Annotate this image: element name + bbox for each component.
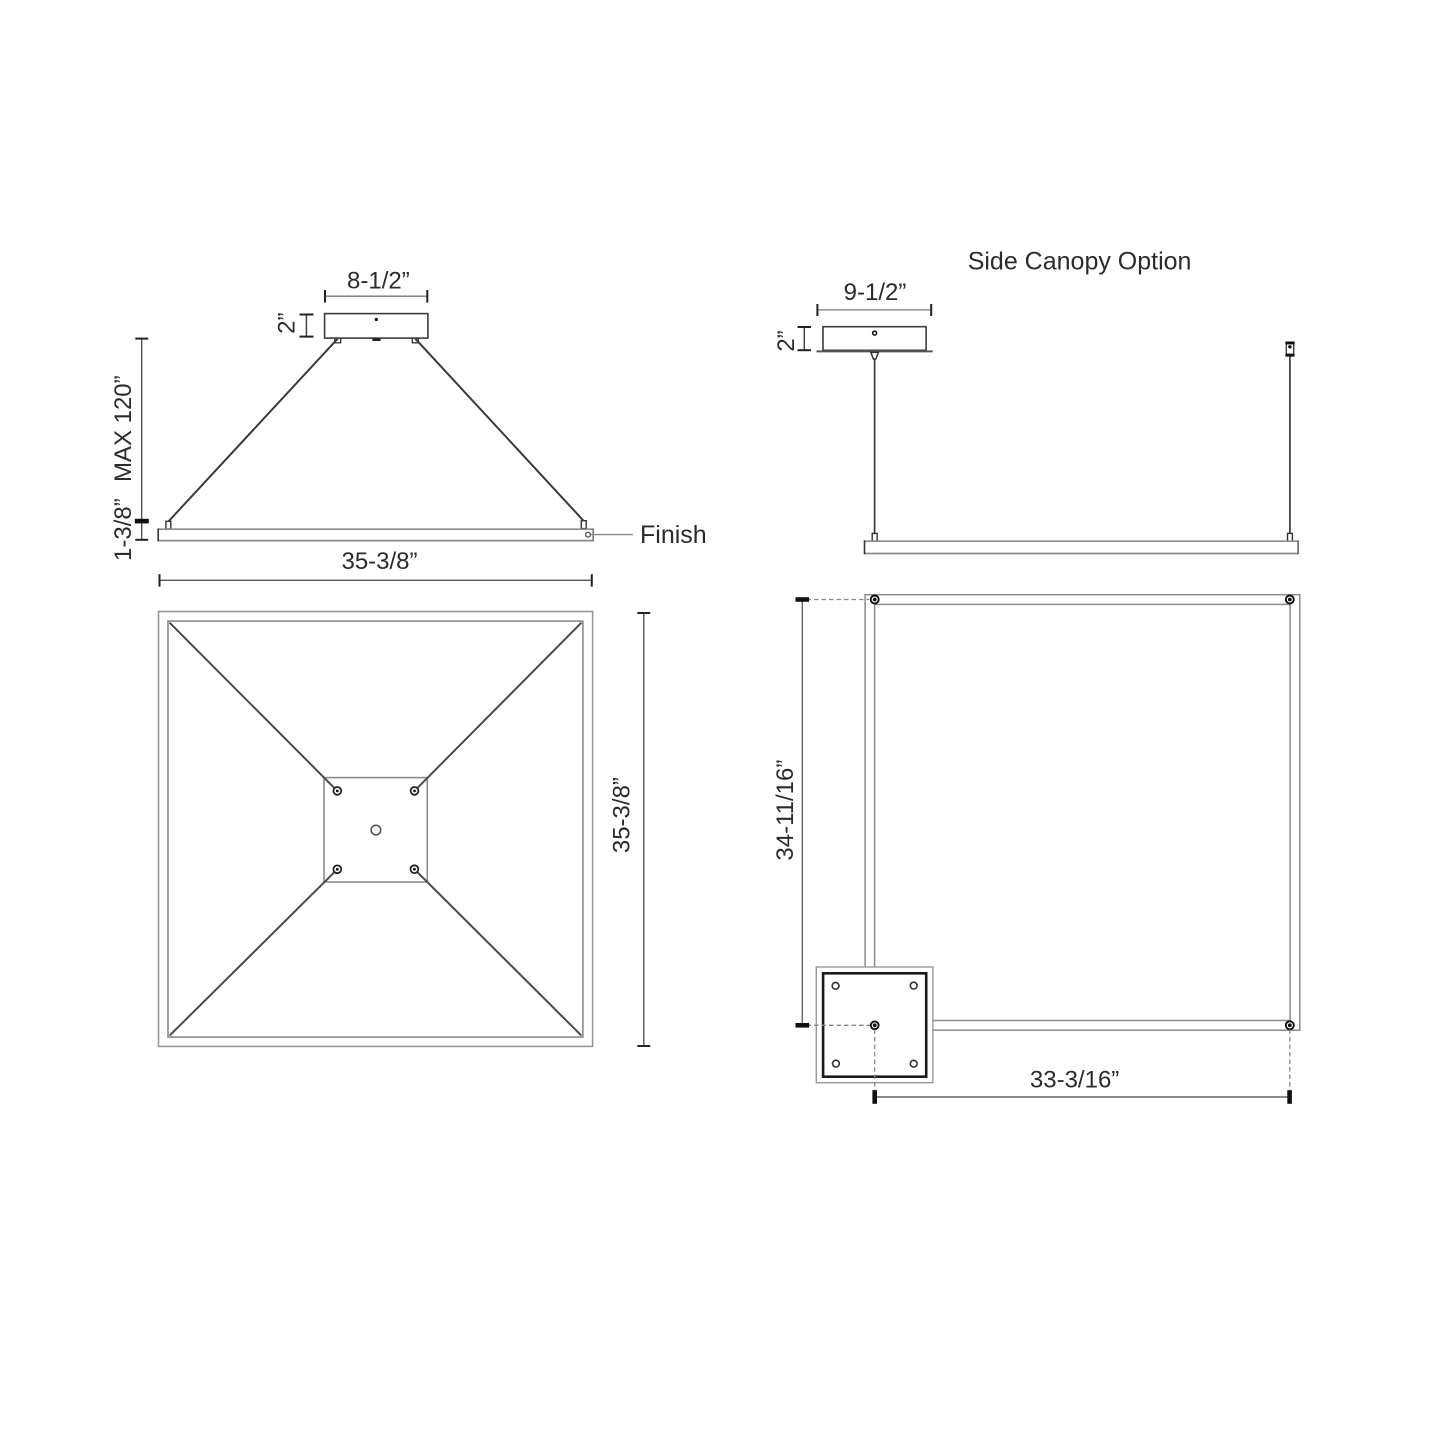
svg-text:8-1/2”: 8-1/2” xyxy=(347,268,410,295)
svg-text:34-11/16”: 34-11/16” xyxy=(772,760,799,861)
svg-text:Side Canopy Option: Side Canopy Option xyxy=(968,248,1192,276)
svg-text:35-3/8”: 35-3/8” xyxy=(341,548,417,575)
svg-text:Finish: Finish xyxy=(640,521,707,549)
svg-text:9-1/2”: 9-1/2” xyxy=(844,279,907,306)
svg-text:2”: 2” xyxy=(274,313,301,334)
svg-text:35-3/8”: 35-3/8” xyxy=(609,777,636,853)
svg-text:1-3/8”: 1-3/8” xyxy=(110,498,137,561)
svg-text:MAX 120”: MAX 120” xyxy=(110,375,137,482)
svg-text:2”: 2” xyxy=(773,330,800,351)
svg-text:33-3/16”: 33-3/16” xyxy=(1030,1067,1119,1094)
